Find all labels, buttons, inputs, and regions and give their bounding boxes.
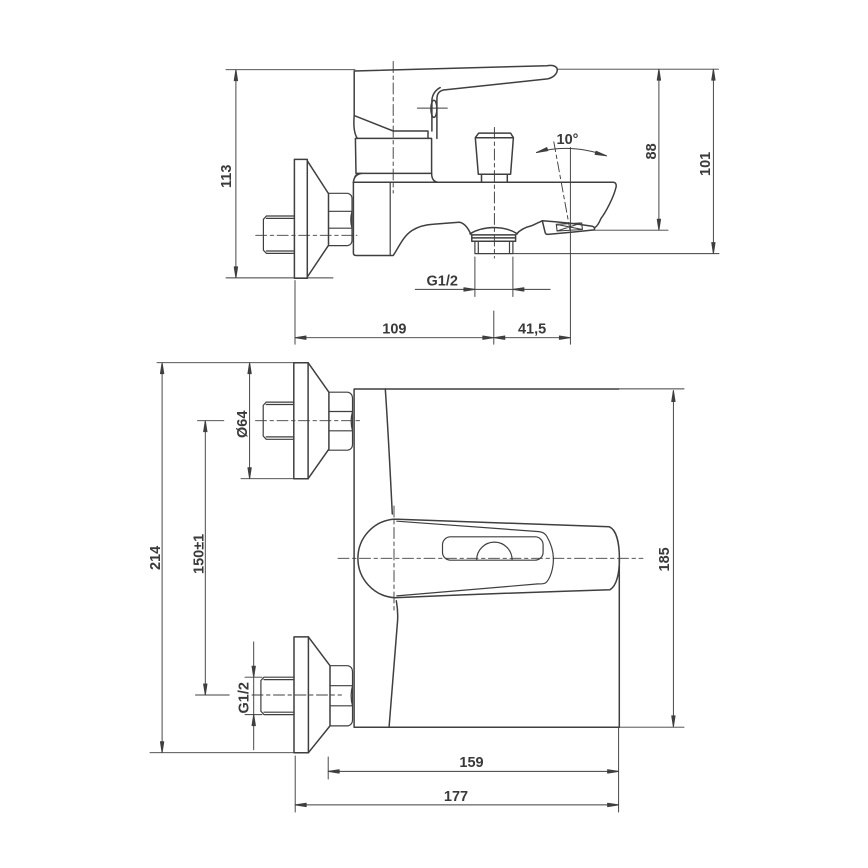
svg-text:109: 109 — [382, 322, 406, 338]
svg-text:88: 88 — [644, 143, 660, 159]
svg-text:159: 159 — [459, 755, 483, 771]
svg-text:41,5: 41,5 — [518, 322, 546, 338]
svg-text:G1/2: G1/2 — [237, 682, 253, 713]
svg-text:Ø64: Ø64 — [235, 411, 251, 438]
svg-text:G1/2: G1/2 — [427, 274, 458, 290]
svg-text:150±1: 150±1 — [192, 534, 208, 574]
svg-text:185: 185 — [657, 547, 673, 571]
svg-text:177: 177 — [444, 789, 468, 805]
svg-text:214: 214 — [148, 546, 164, 570]
svg-text:113: 113 — [219, 165, 235, 188]
svg-text:10°: 10° — [557, 132, 579, 148]
svg-text:101: 101 — [698, 152, 714, 176]
